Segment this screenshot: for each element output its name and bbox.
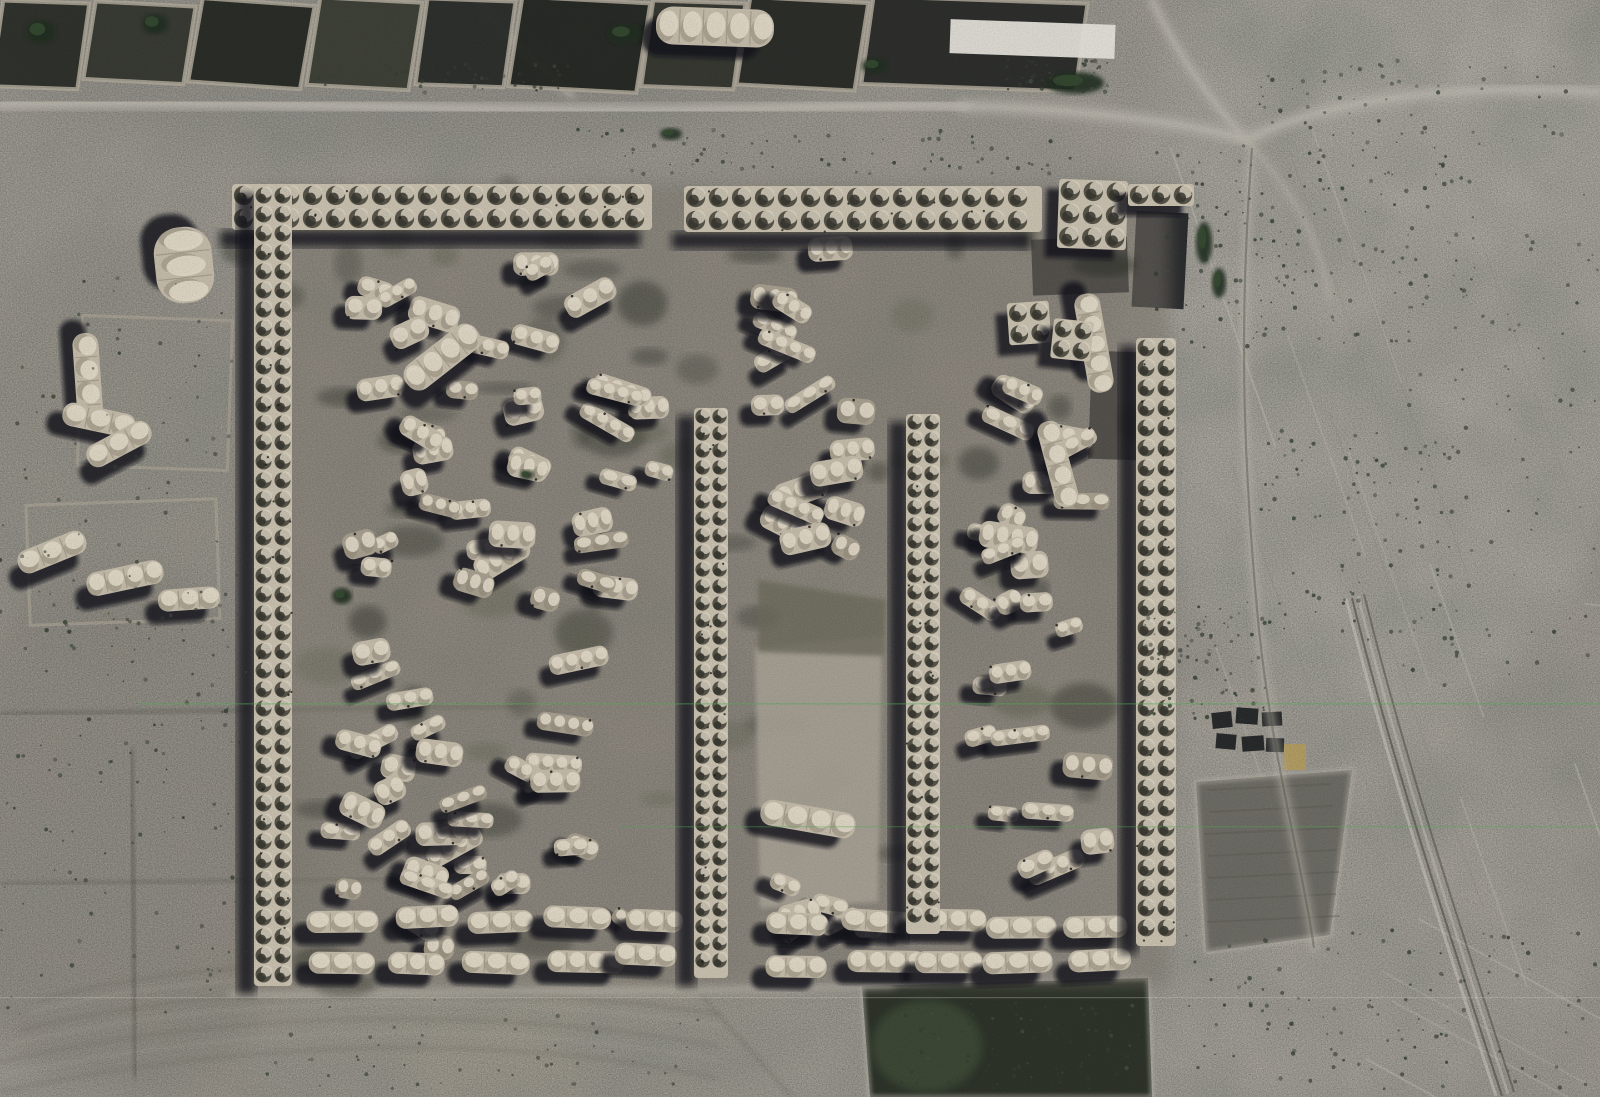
aerial-photograph [0, 0, 1600, 1097]
film-artifact-layer [0, 0, 1600, 1097]
satellite-image-canvas [0, 0, 1600, 1097]
